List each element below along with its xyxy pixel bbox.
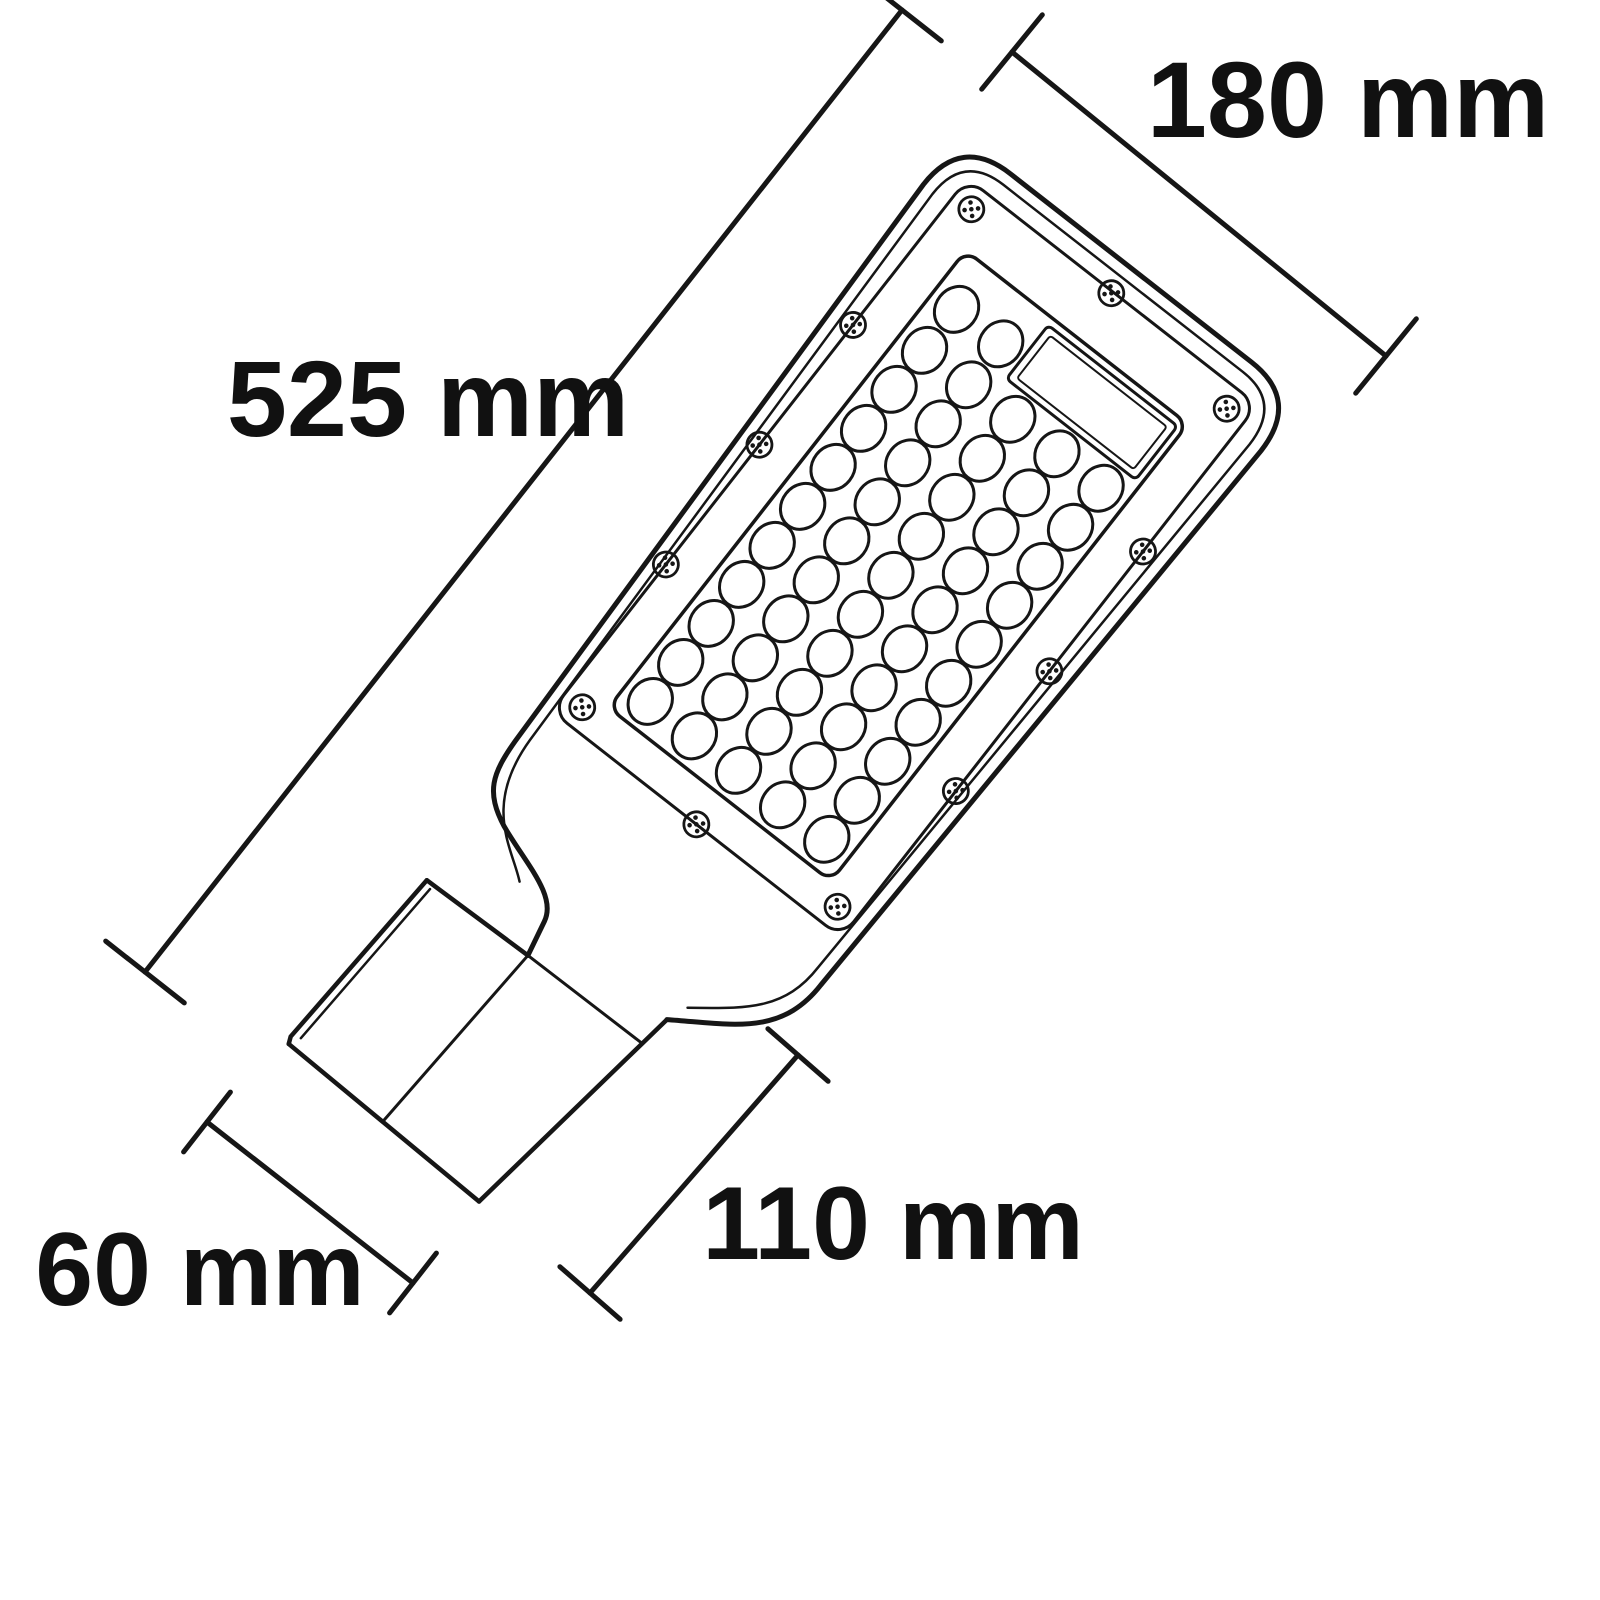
led-lens [846,470,909,534]
led-lens [724,626,787,690]
led-lens [649,631,712,695]
street-light-dimension-diagram: 525 mm 180 mm 110 mm 60 mm [0,0,1600,1600]
screw-icon [679,807,714,842]
screw-icon [1209,391,1244,426]
led-lens [921,465,984,529]
dimension-tick [184,1092,231,1152]
screw-icon [1032,654,1067,689]
led-lens [771,475,834,539]
led-panel-bezel [551,178,1257,937]
lamp-housing-outline [399,136,1300,1120]
mounting-tube [282,844,667,1224]
screw-icon [835,307,870,342]
tube-near-corner-edge [384,948,528,1127]
led-lens [981,387,1044,451]
led-lens [1026,422,1089,486]
led-lens [969,312,1032,376]
led-lens-grid [619,278,1164,872]
screw-icon [820,889,855,924]
tube-collar-edge [427,878,528,958]
dimension-label-525: 525 mm [227,338,629,459]
led-lens [738,700,801,764]
led-lens [826,768,889,832]
dimension-label-110: 110 mm [702,1166,1084,1282]
led-lens [863,358,926,422]
led-lens [937,353,1000,417]
led-lens [812,695,875,759]
street-light-drawing [262,136,1301,1297]
led-lens [1039,495,1102,559]
led-lens [887,690,950,754]
led-lens [782,734,845,798]
led-lens [815,509,878,573]
screw-icon [954,192,989,227]
led-lens [1009,534,1072,598]
led-lens [907,392,970,456]
dimension-60: 60 mm [35,1092,436,1328]
led-lens [951,426,1014,490]
panel-screws [534,162,1274,955]
led-lens [948,612,1011,676]
led-window-inner [1017,336,1167,470]
tube-right-edge [479,997,667,1223]
screw-icon [742,427,777,462]
dimension-tick [768,1029,828,1082]
led-lens [754,587,817,651]
screw-icon [1125,534,1160,569]
led-lens [802,436,865,500]
tube-left-edge [286,873,426,1048]
dimension-tick [863,0,942,41]
dimension-tick [560,1267,620,1320]
screw-icon [565,690,600,725]
led-lens [978,573,1041,637]
led-lens [829,582,892,646]
dimension-label-60: 60 mm [35,1212,365,1328]
led-lens [741,514,804,578]
dimension-110: 110 mm [560,1029,1084,1320]
dimension-tick [390,1253,437,1313]
dimension-tick [1356,319,1417,393]
led-lens [785,548,848,612]
tube-left-edge-inner [301,883,430,1044]
diagram-stage: 525 mm 180 mm 110 mm 60 mm [0,0,1600,1600]
led-lens [768,661,831,725]
led-lens [893,319,956,383]
led-lens [799,621,862,685]
led-lens [680,592,743,656]
led-lens [934,539,997,603]
led-lens [904,578,967,642]
dimension-label-180: 180 mm [1147,39,1549,160]
led-lens [876,431,939,495]
led-lens [694,665,757,729]
led-panel-glass [609,251,1188,882]
led-lens [1070,456,1133,520]
led-lens [710,553,773,617]
led-lens [856,729,919,793]
led-lens [843,656,906,720]
led-lens [832,397,895,461]
led-lens [965,500,1028,564]
tube-junction-edge [528,955,642,1044]
led-lens [873,617,936,681]
dimension-180: 180 mm [982,15,1549,393]
led-lens [925,278,988,342]
dimension-tick [106,941,185,1003]
tube-bottom-edge [284,1044,483,1202]
led-lens [890,504,953,568]
dimension-tick [982,15,1043,89]
led-lens [860,543,923,607]
led-lens [995,461,1058,525]
led-lens [917,651,980,715]
